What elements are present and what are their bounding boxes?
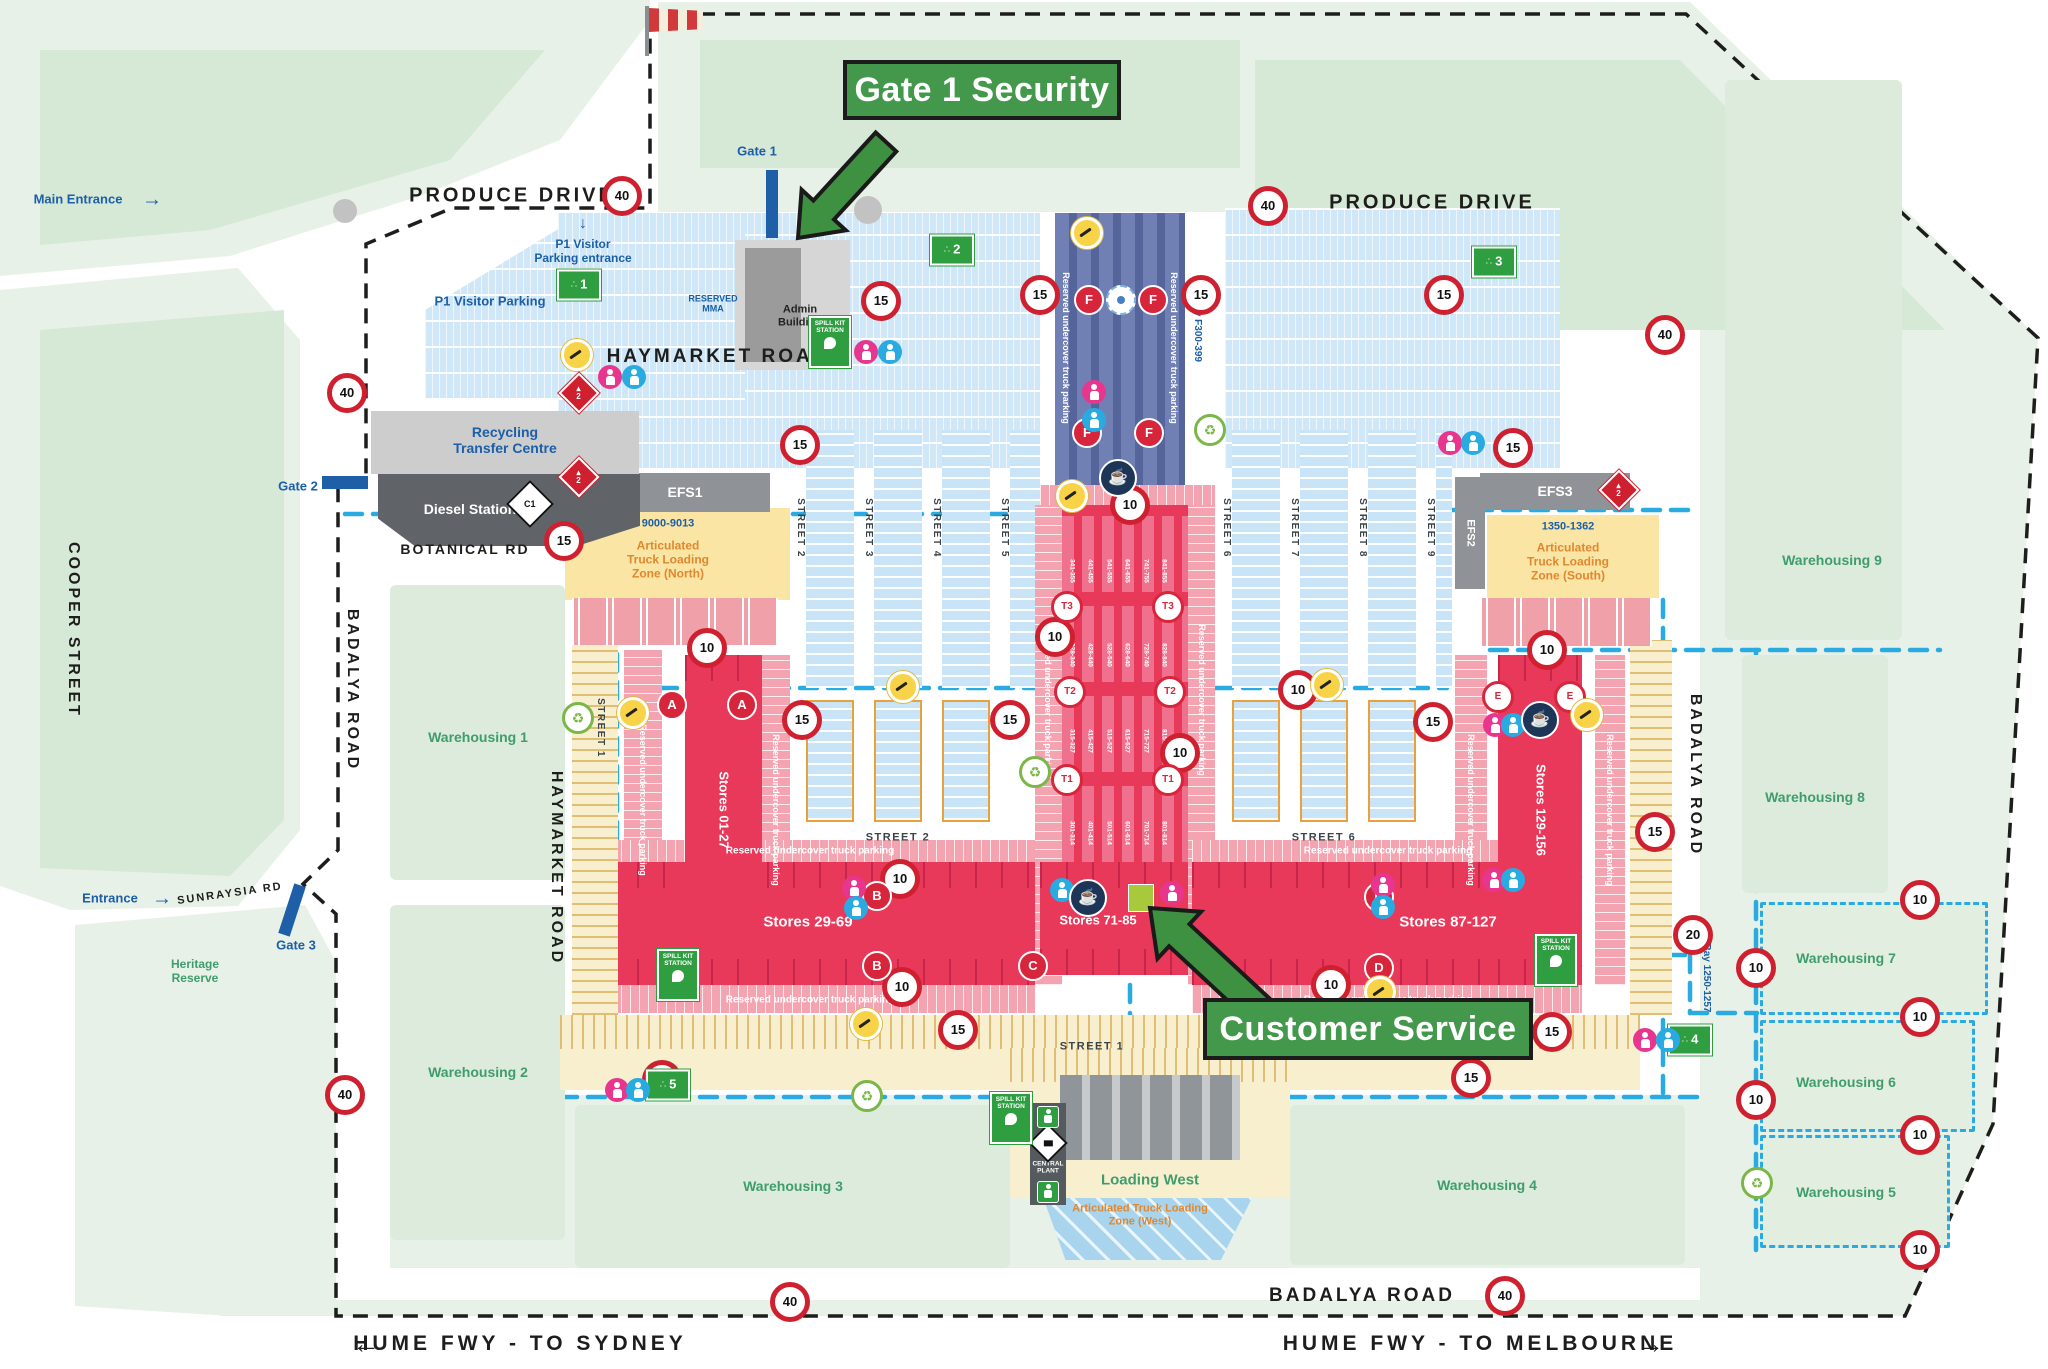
site-map: Gate 1 Security Customer Service PRODUCE…	[0, 0, 2048, 1369]
gate1-security-callout: Gate 1 Security	[843, 60, 1121, 120]
customer-service-callout: Customer Service	[1203, 998, 1533, 1060]
callout-arrows	[0, 0, 2048, 1369]
gate1-security-arrow	[798, 133, 896, 239]
